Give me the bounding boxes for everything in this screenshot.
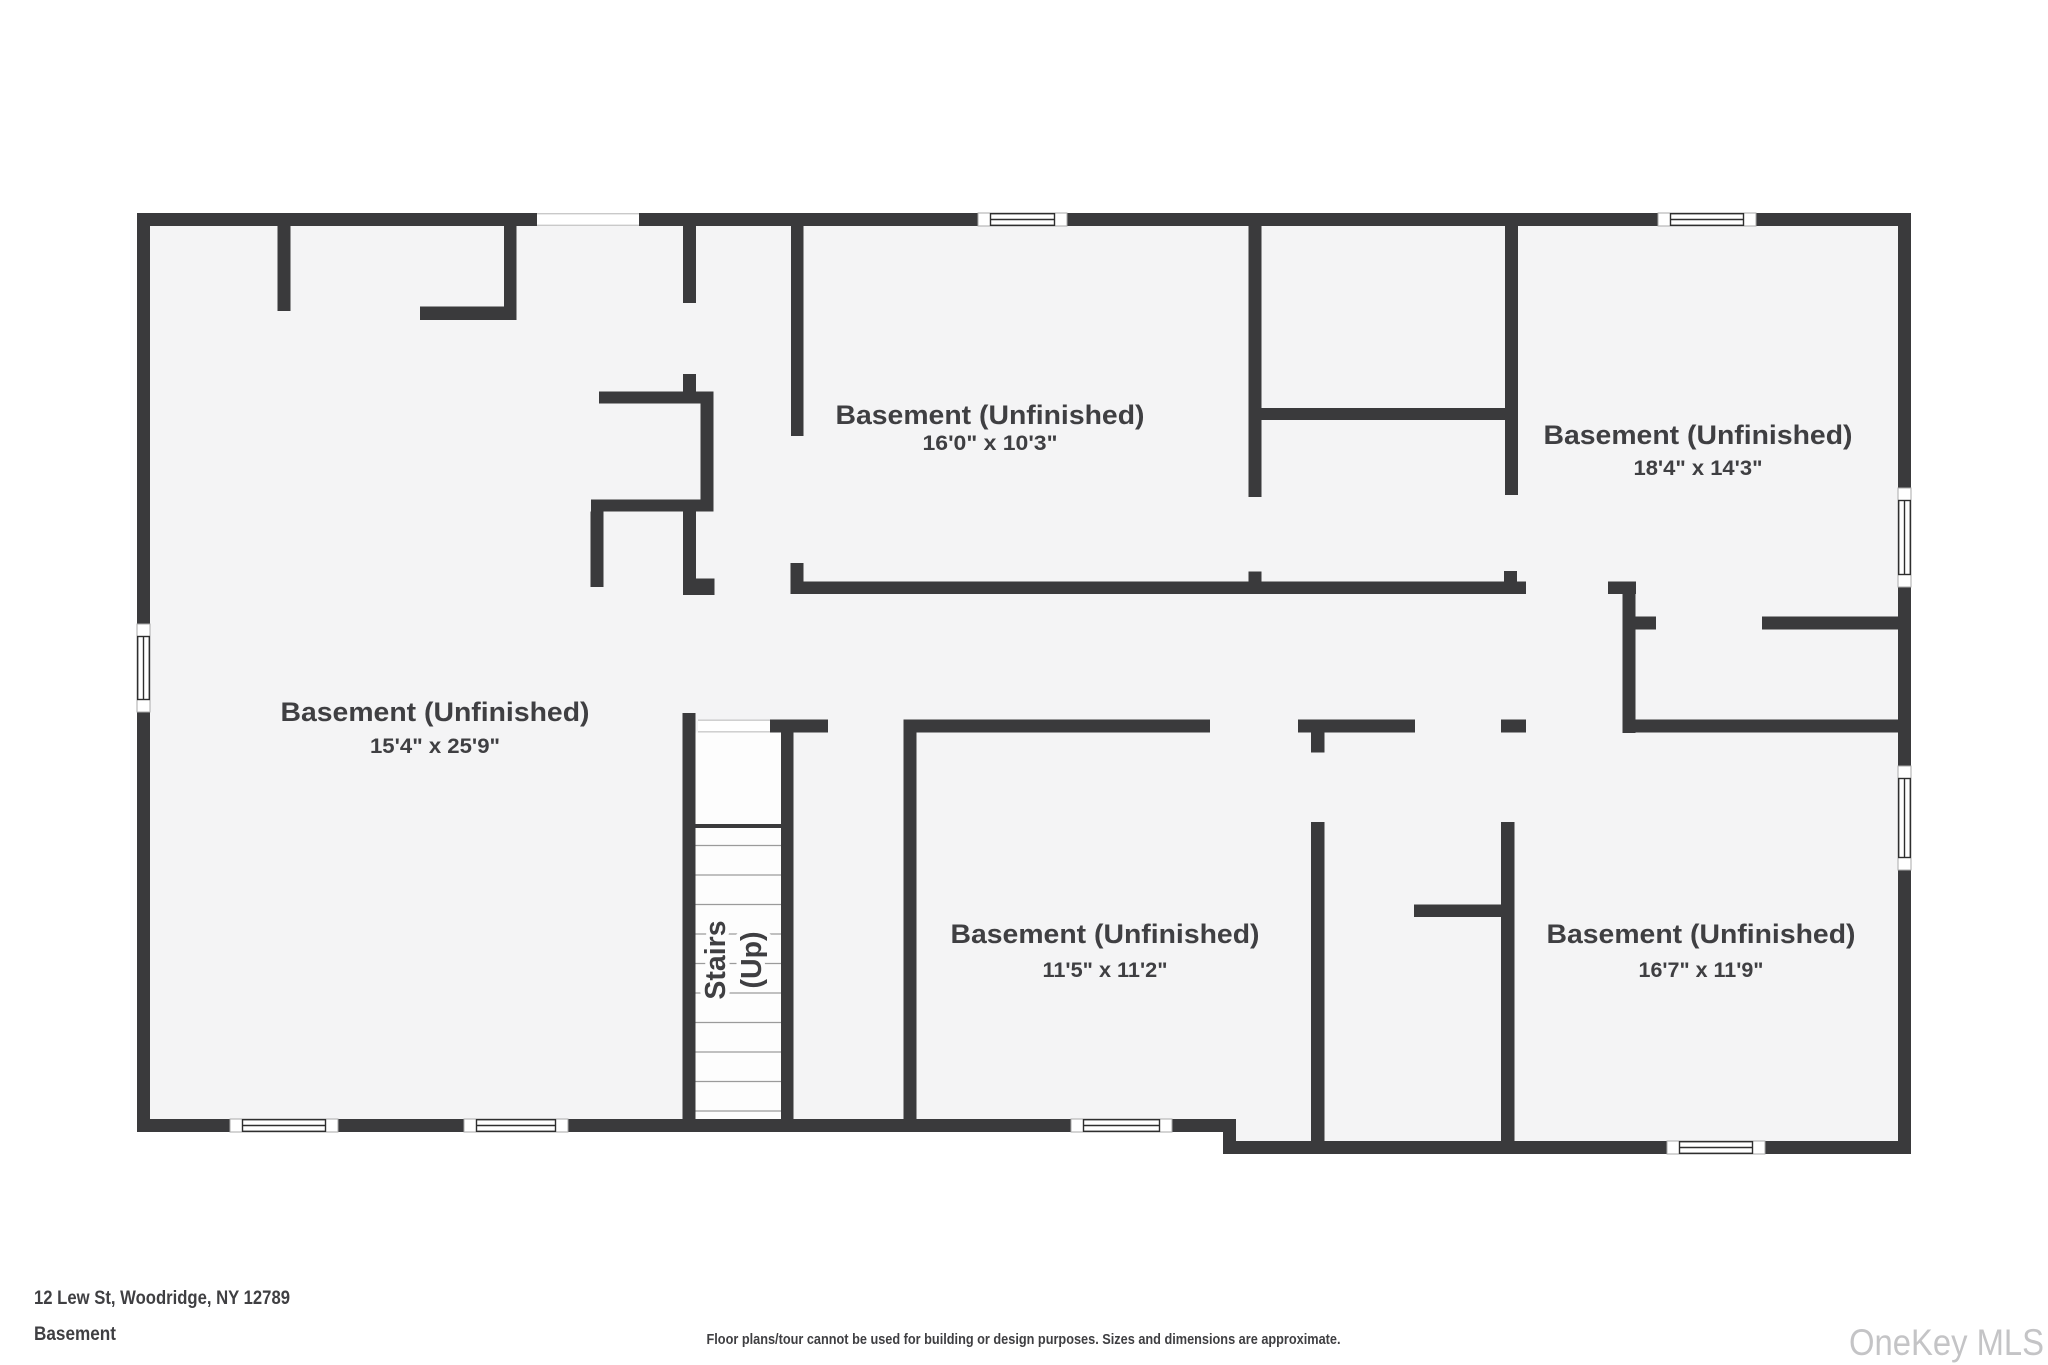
svg-text:11'5" x 11'2": 11'5" x 11'2": [1043, 959, 1168, 982]
svg-text:Basement (Unfinished): Basement (Unfinished): [951, 919, 1260, 949]
svg-text:18'4" x 14'3": 18'4" x 14'3": [1634, 457, 1763, 480]
svg-text:Basement (Unfinished): Basement (Unfinished): [1544, 420, 1853, 450]
svg-text:Basement (Unfinished): Basement (Unfinished): [836, 400, 1145, 430]
svg-text:Floor plans/tour cannot be use: Floor plans/tour cannot be used for buil…: [707, 1331, 1341, 1348]
svg-text:Basement (Unfinished): Basement (Unfinished): [1547, 919, 1856, 949]
svg-text:Stairs: Stairs: [700, 920, 732, 999]
svg-text:12 Lew St, Woodridge, NY 12789: 12 Lew St, Woodridge, NY 12789: [34, 1288, 290, 1309]
svg-text:15'4" x 25'9": 15'4" x 25'9": [370, 735, 500, 758]
svg-text:Basement: Basement: [34, 1324, 117, 1345]
svg-text:16'7" x 11'9": 16'7" x 11'9": [1639, 959, 1764, 982]
svg-text:OneKey MLS: OneKey MLS: [1849, 1322, 2044, 1363]
svg-text:Basement (Unfinished): Basement (Unfinished): [281, 697, 590, 727]
svg-text:(Up): (Up): [736, 932, 768, 989]
svg-text:16'0" x 10'3": 16'0" x 10'3": [923, 432, 1058, 455]
